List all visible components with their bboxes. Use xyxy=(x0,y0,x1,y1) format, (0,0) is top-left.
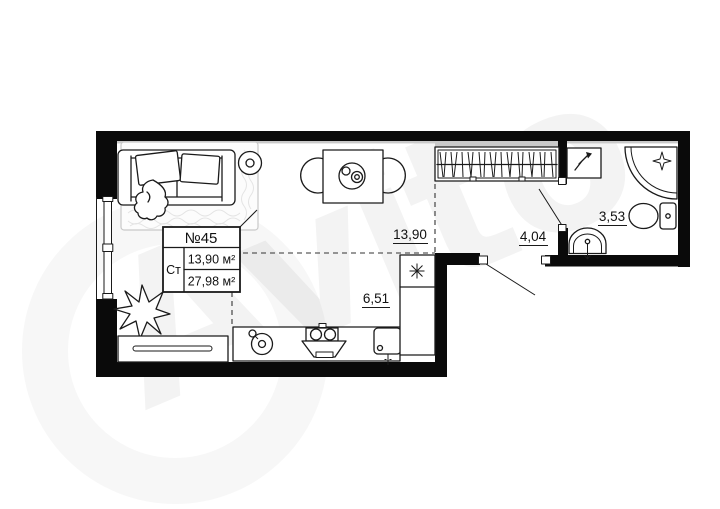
snowflake-icon xyxy=(410,264,425,279)
unit-type: Ст xyxy=(166,263,181,277)
unit-living-area: 13,90 м² xyxy=(188,253,236,267)
side-table xyxy=(239,152,262,175)
dining-set xyxy=(301,150,406,203)
pillow xyxy=(135,151,180,186)
floor-plan-drawing: 13,90 6,51 4,04 3,53 №45 Ст 13,90 м² 27,… xyxy=(0,0,720,509)
door-leaf xyxy=(486,264,535,295)
pillow xyxy=(180,154,220,185)
toilet xyxy=(629,203,676,229)
fridge xyxy=(400,255,435,355)
kitchen-area-label: 6,51 xyxy=(363,291,389,306)
unit-total-area: 27,98 м² xyxy=(188,275,236,289)
kitchen xyxy=(233,255,435,365)
main-room-area-label: 13,90 xyxy=(393,227,427,242)
bathroom-area-label: 3,53 xyxy=(599,209,625,224)
entrance-door xyxy=(479,256,551,295)
kitchen-wall xyxy=(435,253,447,377)
floor-plan-image: Avito xyxy=(0,0,720,509)
entrance-wall-left xyxy=(435,253,480,265)
door-leaf xyxy=(539,189,563,227)
wardrobe xyxy=(435,147,559,181)
window xyxy=(97,197,113,300)
bathroom-wall-lower xyxy=(558,228,568,257)
electrical-panel xyxy=(567,148,601,178)
tv-stand xyxy=(118,336,228,362)
plant-icon xyxy=(114,285,170,339)
unit-number: №45 xyxy=(185,230,218,247)
hallway-area-label: 4,04 xyxy=(520,229,547,244)
washbasin xyxy=(569,228,606,259)
bathroom-door xyxy=(539,178,566,232)
window-mullion xyxy=(103,244,113,252)
shower xyxy=(625,147,677,199)
table-plate xyxy=(339,163,365,189)
